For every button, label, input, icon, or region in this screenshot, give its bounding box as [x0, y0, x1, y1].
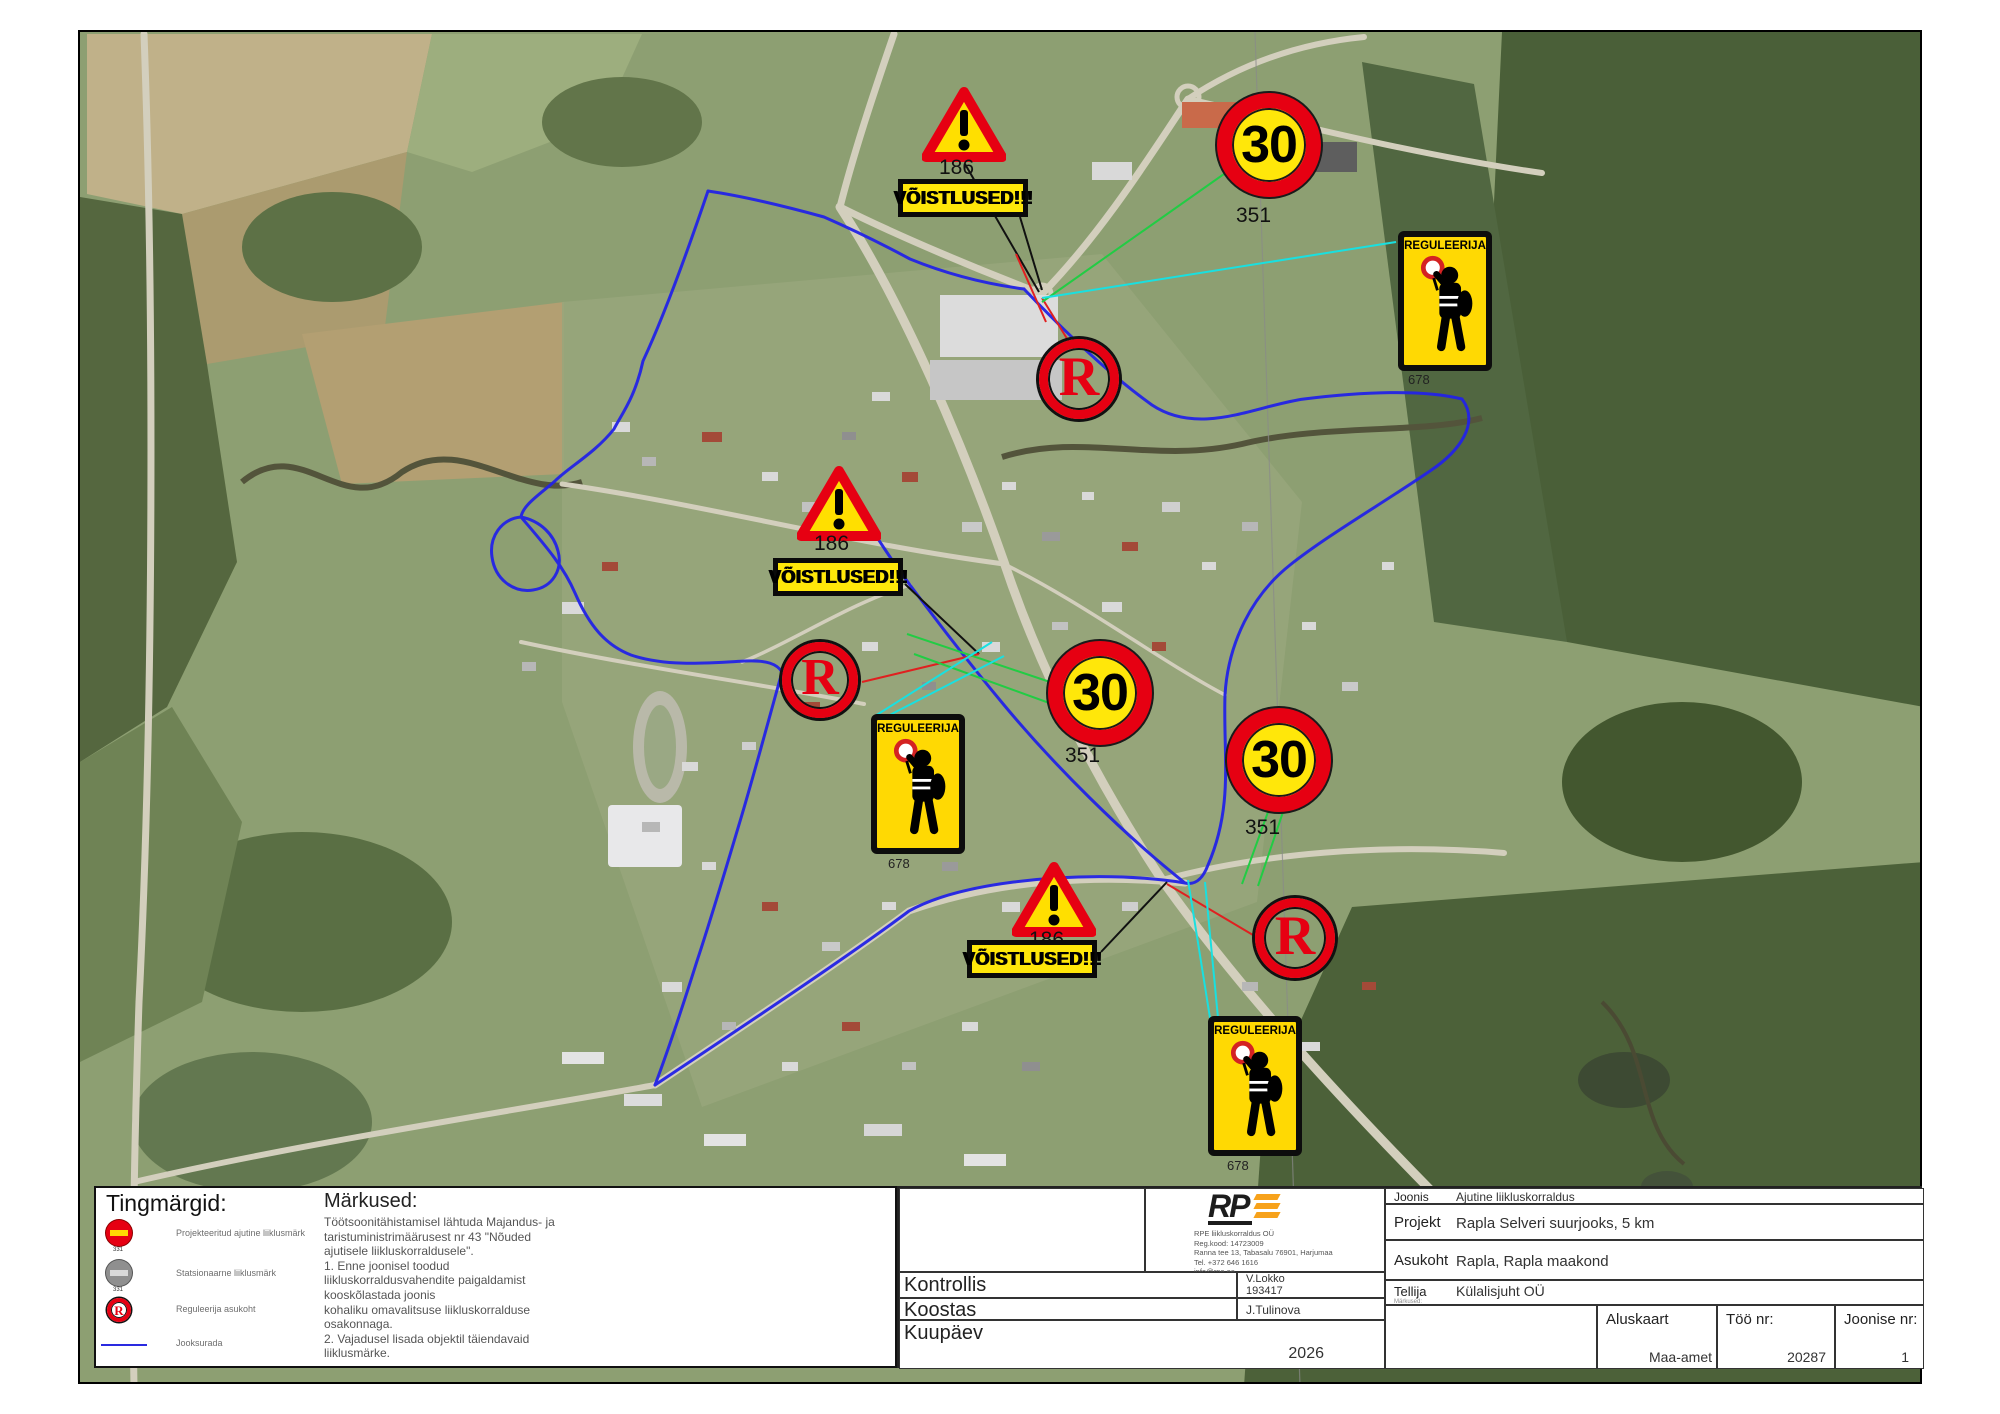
legend-item-label: Reguleerija asukoht [176, 1304, 256, 1314]
koostas-value-cell: J.Tulinova [1237, 1298, 1385, 1320]
voistlused-sign: VÕISTLUSED!!! [967, 940, 1097, 978]
legend-item-label: Statsionaarne liiklusmärk [176, 1268, 276, 1278]
aluskaart-label: Aluskaart [1606, 1311, 1669, 1328]
traffic-controller-figure-icon [1222, 1037, 1288, 1141]
voistlused-sign: VÕISTLUSED!!! [898, 179, 1028, 217]
speed-limit-30-sign: 30 [1048, 641, 1152, 745]
kontrollis-label: Kontrollis [904, 1274, 986, 1297]
rpe-logo-e-bars-icon [1255, 1194, 1279, 1218]
too-nr-label: Töö nr: [1726, 1311, 1774, 1328]
kontrollis-value-cell: V.Lokko 193417 [1237, 1272, 1385, 1298]
voistlused-text: VÕISTLUSED!!! [962, 949, 1102, 970]
koostas-label-cell: Koostas [899, 1298, 1237, 1320]
joonise-nr-cell: Joonise nr: 1 [1835, 1305, 1924, 1369]
company-logo-cell: RP RPE liikluskorraldus OÜ Reg.kood: 147… [1145, 1188, 1385, 1272]
r-letter: R [1059, 349, 1099, 405]
notes-title: Märkused: [324, 1190, 417, 1213]
speed-value: 30 [1251, 730, 1307, 790]
rpe-logo: RP [1208, 1191, 1279, 1225]
kontrollis-value: V.Lokko 193417 [1246, 1273, 1285, 1297]
speed-limit-30-sign: 30 [1227, 708, 1331, 812]
voistlused-text: VÕISTLUSED!!! [893, 188, 1033, 209]
joonis-value: Ajutine liikluskorraldus [1456, 1190, 1575, 1204]
route-line-icon [101, 1344, 147, 1346]
kontrollis-label-cell: Kontrollis [899, 1272, 1237, 1298]
reguleerija-location-r-sign: R [1039, 339, 1119, 419]
asukoht-label: Asukoht [1394, 1252, 1448, 1269]
reguleerija-label: REGULEERIJA [877, 723, 959, 735]
koostas-value: J.Tulinova [1246, 1303, 1300, 1317]
legend-item-label: Projekteeritud ajutine liiklusmärk [176, 1228, 305, 1238]
traffic-controller-figure-icon [885, 735, 951, 839]
sign-code-label: 678 [888, 856, 910, 871]
voistlused-sign: VÕISTLUSED!!! [773, 558, 903, 596]
sign-code-label: 351 [1245, 816, 1280, 840]
r-letter: R [1275, 908, 1315, 964]
speed-limit-30-sign: 30 [1217, 93, 1321, 197]
traffic-controller-figure-icon [1412, 252, 1478, 356]
sign-code-label: 351 [1236, 204, 1271, 228]
sign-code-label: 351 [1065, 744, 1100, 768]
reguleerija-location-r-sign: R [1255, 898, 1335, 978]
sign-code-label: 678 [1408, 372, 1430, 387]
legend-item-label: Jooksurada [176, 1338, 223, 1348]
sign-code-label: 186 [814, 532, 849, 556]
aerial-photo-background [80, 32, 1922, 1384]
r-letter: R [114, 1304, 123, 1317]
reguleerija-label: REGULEERIJA [1214, 1025, 1296, 1037]
reguleerija-sign: REGULEERIJA [1398, 231, 1492, 371]
r-letter: R [801, 652, 839, 704]
legend-panel: Tingmärgid: 331 Projekteeritud ajutine l… [94, 1186, 897, 1368]
notes-body: Töötsoonitähistamisel lähtuda Majandus- … [324, 1215, 634, 1361]
legend-sign-code: 331 [113, 1287, 123, 1293]
joonis-label: Joonis [1394, 1190, 1429, 1204]
title-block: RP RPE liikluskorraldus OÜ Reg.kood: 147… [897, 1186, 1922, 1368]
reguleerija-r-sign-icon: R [107, 1298, 131, 1322]
stationary-sign-icon [106, 1260, 132, 1286]
temporary-no-entry-sign-icon [106, 1220, 132, 1246]
legend-title: Tingmärgid: [106, 1190, 227, 1217]
kuupaev-value: 2026 [1288, 1345, 1324, 1363]
tellija-label: Tellija [1394, 1284, 1427, 1299]
company-info: RPE liikluskorraldus OÜ Reg.kood: 147230… [1194, 1229, 1333, 1277]
legend-sign-code: 331 [113, 1247, 123, 1253]
reguleerija-label: REGULEERIJA [1404, 240, 1486, 252]
traffic-plan-page: 186 VÕISTLUSED!!! 30 351 REGULEERIJA [0, 0, 2000, 1414]
reguleerija-sign: REGULEERIJA [871, 714, 965, 854]
projekt-cell: Projekt Rapla Selveri suurjooks, 5 km [1385, 1204, 1924, 1240]
kuupaev-cell: Kuupäev 2026 [899, 1320, 1385, 1369]
joonise-nr-value: 1 [1901, 1349, 1909, 1365]
aluskaart-value: Maa-amet [1649, 1349, 1712, 1365]
reguleerija-sign-face: REGULEERIJA [1212, 1020, 1298, 1152]
kuupaev-label: Kuupäev [904, 1322, 983, 1345]
reguleerija-sign: REGULEERIJA [1208, 1016, 1302, 1156]
projekt-value: Rapla Selveri suurjooks, 5 km [1456, 1215, 1654, 1232]
too-nr-cell: Töö nr: 20287 [1717, 1305, 1835, 1369]
asukoht-cell: Asukoht Rapla, Rapla maakond [1385, 1240, 1924, 1280]
koostas-label: Koostas [904, 1299, 976, 1322]
tellija-cell: Tellija Märkused: Külalisjuht OÜ [1385, 1280, 1924, 1305]
joonis-cell: Joonis Ajutine liikluskorraldus [1385, 1188, 1924, 1204]
warning-triangle-sign [922, 86, 1006, 164]
joonise-nr-label: Joonise nr: [1844, 1311, 1917, 1328]
speed-value: 30 [1072, 663, 1128, 723]
asukoht-value: Rapla, Rapla maakond [1456, 1253, 1609, 1270]
voistlused-text: VÕISTLUSED!!! [768, 567, 908, 588]
reguleerija-sign-face: REGULEERIJA [1402, 235, 1488, 367]
aluskaart-cell: Aluskaart Maa-amet [1597, 1305, 1717, 1369]
title-block-empty-cell [1385, 1305, 1597, 1369]
sign-code-label: 678 [1227, 1158, 1249, 1173]
reguleerija-location-r-sign: R [782, 642, 858, 718]
sign-code-label: 186 [939, 156, 974, 180]
too-nr-value: 20287 [1787, 1349, 1826, 1365]
title-block-empty-cell [899, 1188, 1145, 1272]
aerial-map: 186 VÕISTLUSED!!! 30 351 REGULEERIJA [78, 30, 1922, 1384]
reguleerija-sign-face: REGULEERIJA [875, 718, 961, 850]
speed-value: 30 [1241, 115, 1297, 175]
tellija-value: Külalisjuht OÜ [1456, 1283, 1545, 1299]
projekt-label: Projekt [1394, 1214, 1441, 1231]
rpe-logo-rp: RP [1208, 1191, 1252, 1225]
